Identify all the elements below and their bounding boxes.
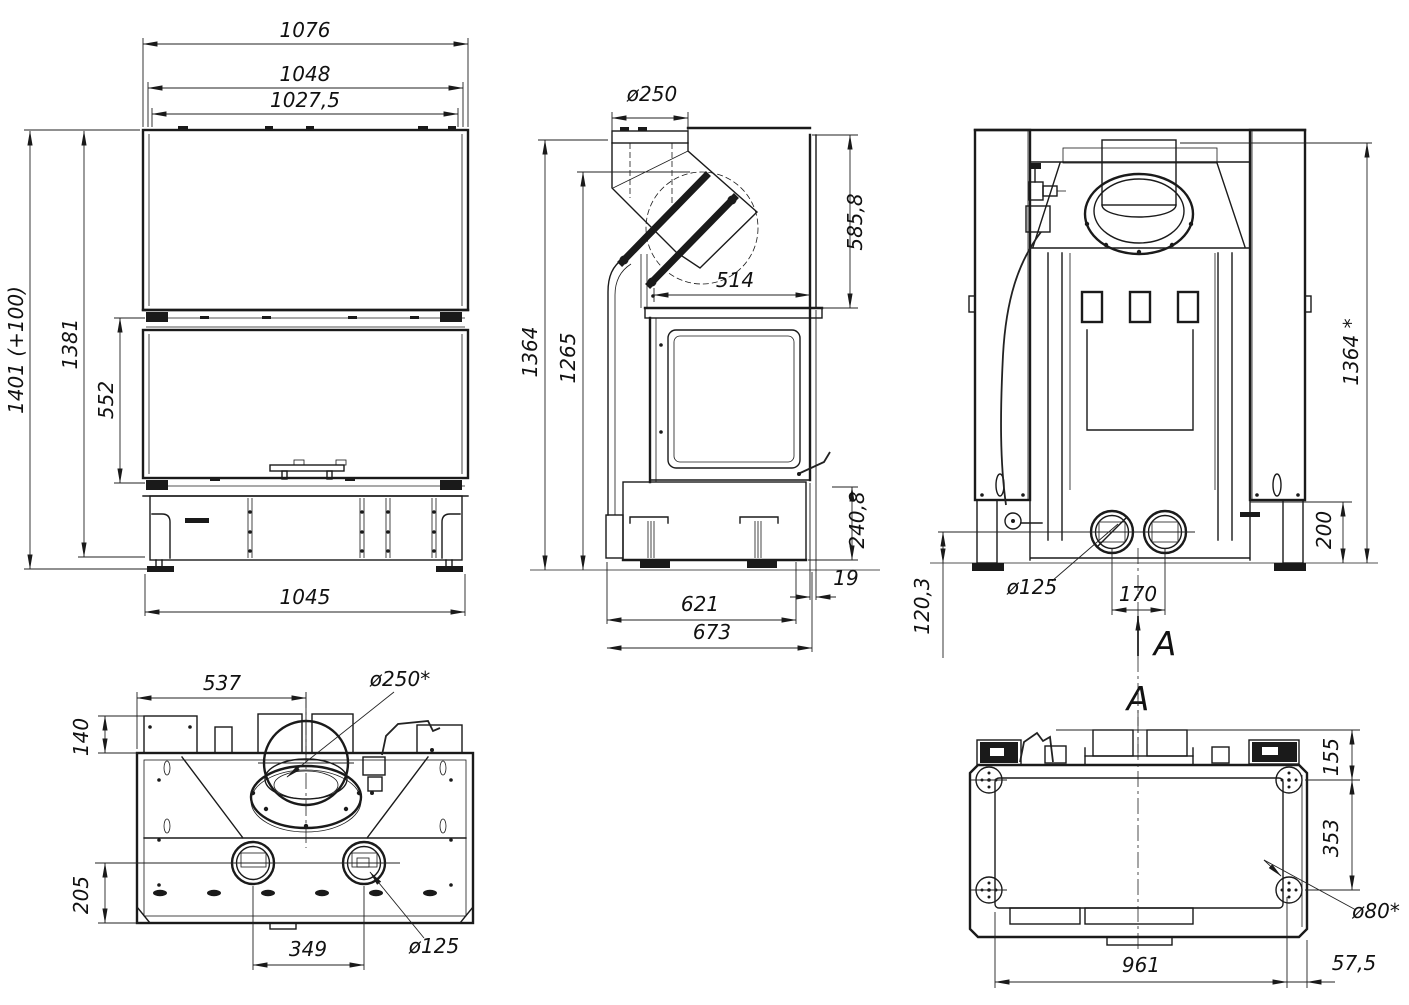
dim-rear-outlet-top-height: 200 <box>1312 511 1336 549</box>
dim-side-handle-height: 240,8 <box>845 491 869 548</box>
dim-side-base-depth: 621 <box>681 592 719 616</box>
dim-side-overall-depth: 673 <box>693 620 731 644</box>
dim-side-flue-diameter: ø250 <box>626 82 677 106</box>
dim-rear-outlet-axis-height: 120,3 <box>910 577 934 634</box>
dim-bottom-foot-spacing-width: 961 <box>1122 953 1160 977</box>
section-arrow-label: A <box>1152 624 1177 663</box>
dim-side-hood-height: 585,8 <box>843 193 867 250</box>
dim-top-collar-diameter: ø250* <box>369 667 430 691</box>
dim-front-door-height: 552 <box>94 381 118 419</box>
dim-top-outlet-spacing: 349 <box>289 937 327 961</box>
dim-side-overall-height: 1364 <box>518 327 542 378</box>
dim-front-total-height: 1401 (+100) <box>4 286 28 414</box>
dim-side-glass-top-height: 1265 <box>556 333 580 384</box>
fireplace-technical-drawing: 1076 1048 1027,5 1401 (+100) 1381 552 10… <box>0 0 1409 1005</box>
dim-front-glass-width: 1027,5 <box>270 88 340 112</box>
dim-top-outlet-axis-offset: 205 <box>69 876 93 914</box>
dim-front-body-height: 1381 <box>58 319 82 370</box>
dim-side-top-depth: 514 <box>716 268 754 292</box>
dim-bottom-foot-spacing-depth: 353 <box>1319 819 1343 857</box>
technical-drawing-page: 1076 1048 1027,5 1401 (+100) 1381 552 10… <box>0 0 1409 1005</box>
dim-side-rear-gap: 19 <box>833 566 858 590</box>
dim-top-outlet-diameter: ø125 <box>408 934 459 958</box>
dim-top-rear-ledge-depth: 140 <box>69 718 93 756</box>
dim-top-collar-axis-offset: 537 <box>203 671 241 695</box>
dim-bottom-foot-axis-from-rear: 155 <box>1319 738 1343 776</box>
dim-rear-outlet-diameter: ø125 <box>1006 575 1057 599</box>
dim-rear-overall-height: 1364 * <box>1339 318 1363 385</box>
dim-bottom-foot-diameter: ø80* <box>1351 899 1400 923</box>
section-view-label: A <box>1125 679 1150 718</box>
dim-bottom-foot-axis-from-side: 57,5 <box>1332 951 1377 975</box>
dim-front-base-width: 1045 <box>280 585 331 609</box>
drawing-background <box>0 0 1409 1005</box>
dim-front-overall-width: 1076 <box>280 18 331 42</box>
dim-front-frame-width: 1048 <box>280 62 331 86</box>
